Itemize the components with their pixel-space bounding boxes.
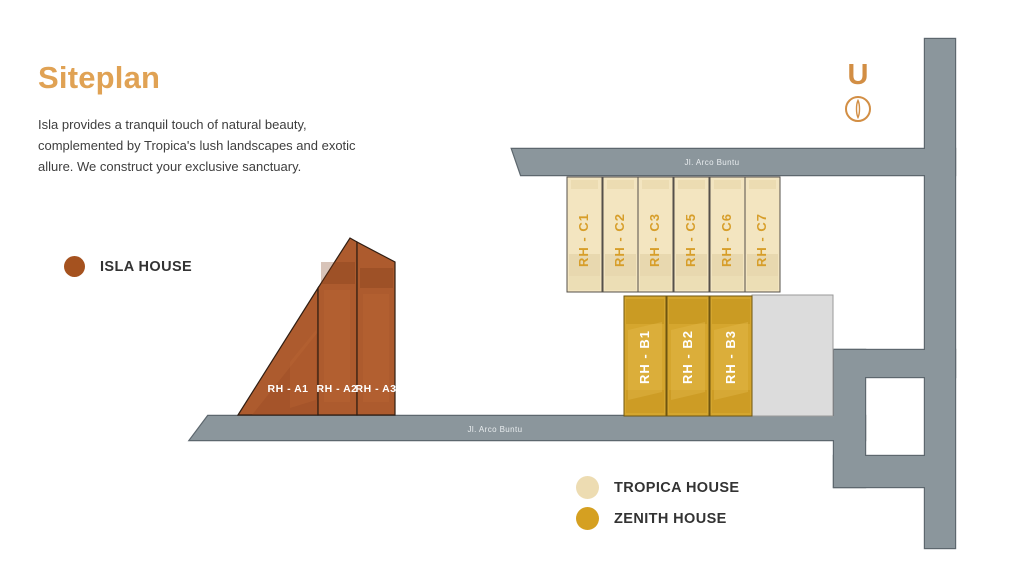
unit-rh-c2: RH - C2 xyxy=(603,177,638,292)
description-line-3: allure. We construct your exclusive sanc… xyxy=(38,156,368,177)
legend-label-zenith: ZENITH HOUSE xyxy=(614,511,727,527)
svg-text:RH - C1: RH - C1 xyxy=(576,213,591,267)
svg-text:RH - B1: RH - B1 xyxy=(637,330,652,384)
svg-text:RH - C2: RH - C2 xyxy=(612,213,627,267)
legend-item-tropica: TROPICA HOUSE xyxy=(576,476,740,499)
unit-rh-b3: RH - B3 xyxy=(710,296,752,416)
tropica-swatch-icon xyxy=(576,476,599,499)
legend-item-isla: ISLA HOUSE xyxy=(64,256,192,277)
siteplan-page: Jl. Arco Buntu Jl. Arco Buntu RH - C1 RH… xyxy=(0,0,1024,576)
unit-rh-b2: RH - B2 xyxy=(667,296,709,416)
page-description: Isla provides a tranquil touch of natura… xyxy=(38,114,368,177)
svg-text:RH - B3: RH - B3 xyxy=(723,330,738,384)
unit-rh-a2: RH - A2 xyxy=(316,238,357,415)
svg-text:RH - C3: RH - C3 xyxy=(647,213,662,267)
unit-rh-c6: RH - C6 xyxy=(710,177,745,292)
zenith-swatch-icon xyxy=(576,507,599,530)
road-label-top: Jl. Arco Buntu xyxy=(685,158,740,167)
empty-lot-block xyxy=(752,295,833,416)
svg-text:RH - A2: RH - A2 xyxy=(316,383,357,395)
compass-needle-icon xyxy=(843,94,873,124)
svg-text:RH - A1: RH - A1 xyxy=(267,383,308,395)
svg-text:RH - C5: RH - C5 xyxy=(683,213,698,267)
legend-label-tropica: TROPICA HOUSE xyxy=(614,480,740,496)
svg-text:RH - C7: RH - C7 xyxy=(754,213,769,267)
zenith-house-cluster: RH - B1 RH - B2 RH - B3 xyxy=(624,296,752,416)
unit-rh-c1: RH - C1 xyxy=(567,177,602,292)
description-line-2: complemented by Tropica's lush landscape… xyxy=(38,135,368,156)
page-title: Siteplan xyxy=(38,60,368,96)
unit-rh-a1: RH - A1 xyxy=(238,288,318,415)
unit-rh-c5: RH - C5 xyxy=(674,177,709,292)
header: Siteplan Isla provides a tranquil touch … xyxy=(38,60,368,177)
unit-rh-b1: RH - B1 xyxy=(624,296,666,416)
unit-rh-c3: RH - C3 xyxy=(638,177,673,292)
svg-text:RH - B2: RH - B2 xyxy=(680,330,695,384)
svg-text:RH - A3: RH - A3 xyxy=(355,383,396,395)
legend-label-isla: ISLA HOUSE xyxy=(100,259,192,275)
tropica-house-cluster: RH - C1 RH - C2 RH - C3 RH xyxy=(567,177,780,292)
isla-house-cluster: RH - A1 RH - A2 RH - A3 xyxy=(238,238,397,415)
unit-rh-c7: RH - C7 xyxy=(745,177,780,292)
road-label-bottom: Jl. Arco Buntu xyxy=(468,425,523,434)
isla-swatch-icon xyxy=(64,256,85,277)
compass: U xyxy=(840,60,876,129)
unit-rh-a3: RH - A3 xyxy=(355,242,396,415)
legend-item-zenith: ZENITH HOUSE xyxy=(576,507,727,530)
svg-text:RH - C6: RH - C6 xyxy=(719,213,734,267)
description-line-1: Isla provides a tranquil touch of natura… xyxy=(38,114,368,135)
compass-north-letter: U xyxy=(840,60,876,90)
